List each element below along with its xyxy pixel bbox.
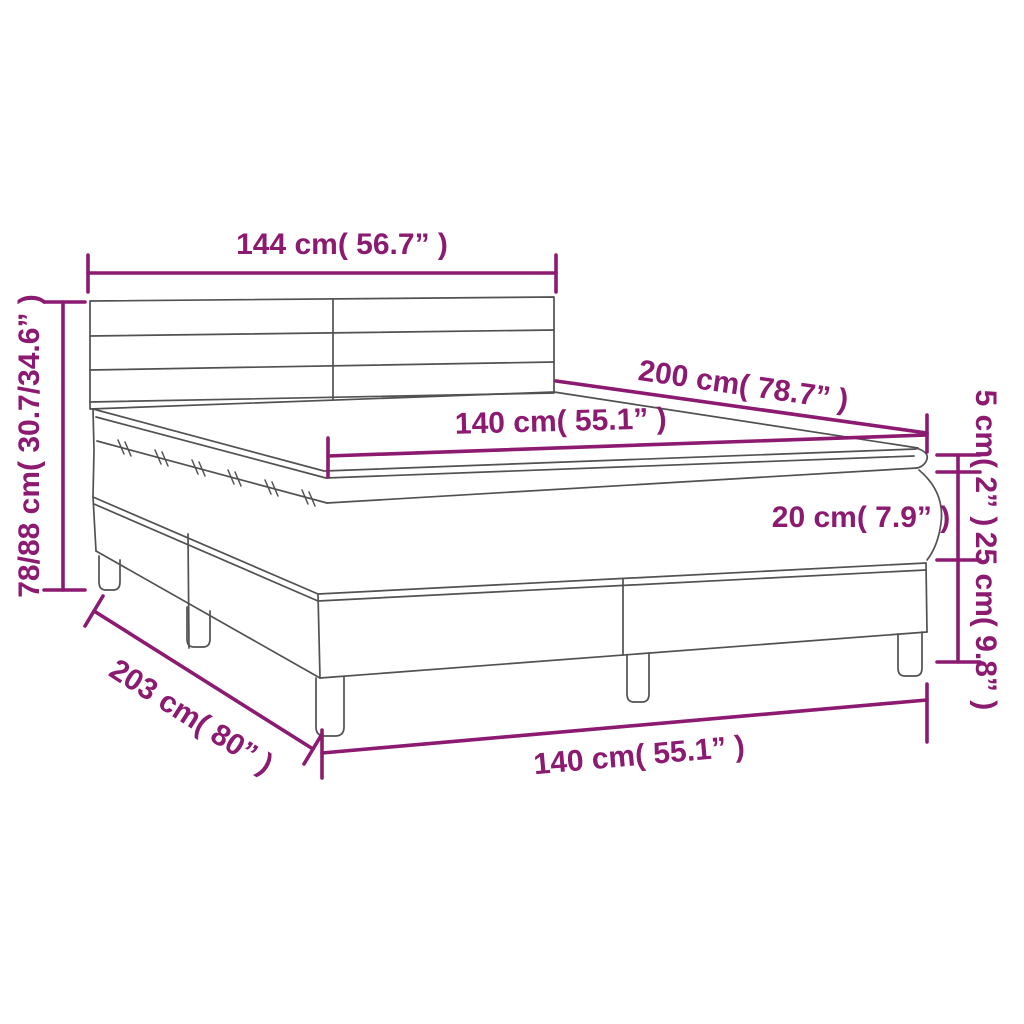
base-front-corner-edge [318,594,320,678]
bed-leg [316,677,344,736]
bed-leg [99,556,120,590]
topper-bottom-left-seam [97,441,327,503]
base-top-left-seam [94,504,318,601]
headboard-outline [90,297,554,409]
label-mattress-thickness: 20 cm( 7.9” ) [772,501,950,534]
bed-dimension-diagram: 144 cm( 56.7” ) 78/88 cm( 30.7/34.6” ) 2… [0,0,1024,1024]
dim-line-sleeping-width [328,435,927,456]
dimension-labels: 144 cm( 56.7” ) 78/88 cm( 30.7/34.6” ) 2… [13,228,1002,781]
base-left-divider [188,534,189,648]
topper-bottom-foot-seam [327,468,917,503]
bed-leg [627,653,649,702]
label-bed-width: 140 cm( 55.1” ) [532,730,746,781]
label-sleeping-width: 140 cm( 55.1” ) [454,402,667,441]
label-base-height: 25 cm( 9.8” ) [969,532,1002,710]
label-bed-height: 78/88 cm( 30.7/34.6” ) [13,294,46,598]
base-top-foot-seam [318,570,926,601]
base-right-edge [926,563,927,632]
bed-leg [898,632,922,676]
diagram-canvas: 144 cm( 56.7” ) 78/88 cm( 30.7/34.6” ) 2… [0,0,1024,1024]
base-top-foot-edge [318,563,926,594]
dim-tick [304,734,322,764]
label-headboard-width: 144 cm( 56.7” ) [236,228,448,261]
headboard-stripe [90,362,554,370]
dim-tick [85,596,103,626]
mattress-left-corner-edge [93,409,94,497]
headboard-stripe [90,330,554,336]
label-topper-thickness: 5 cm( 2” ) [969,390,1002,527]
base-top-left-edge [93,497,318,594]
